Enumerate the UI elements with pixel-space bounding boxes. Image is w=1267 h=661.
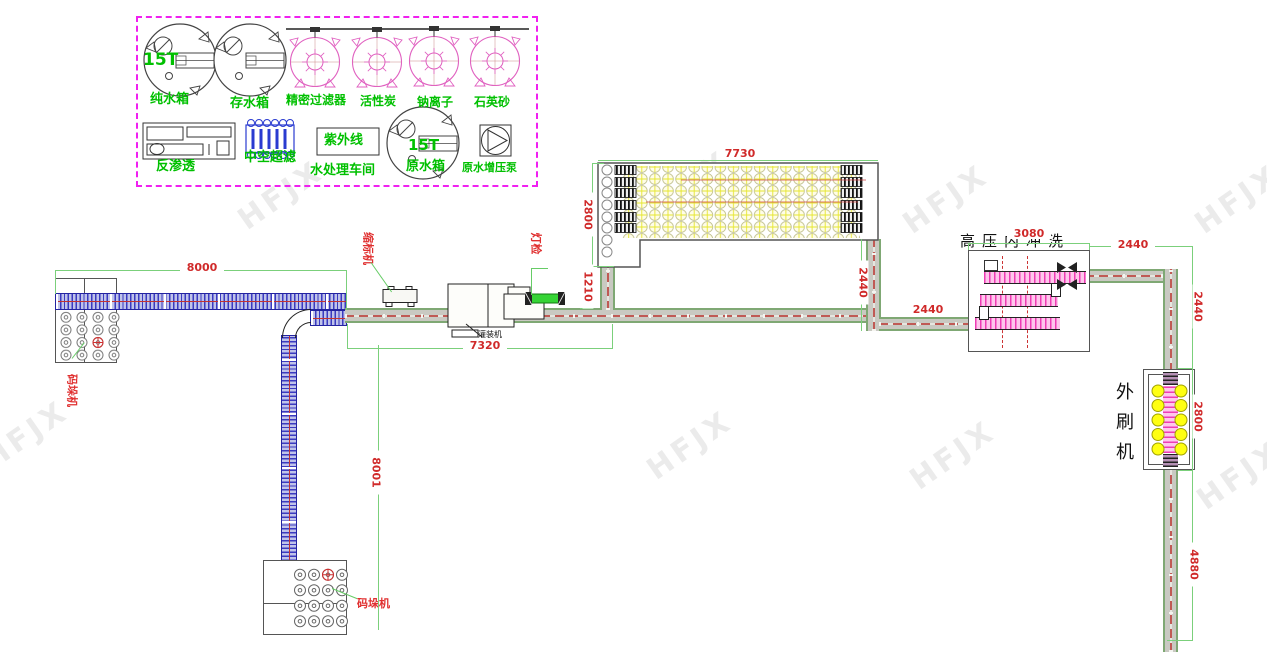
dim-2440-wash-in: 2440 bbox=[906, 304, 950, 315]
dim-ext bbox=[347, 324, 348, 348]
legend-sodium-ion: 钠离子 bbox=[417, 96, 453, 108]
dim-8001: 8001 bbox=[371, 451, 382, 495]
dim-2440-top-right: 2440 bbox=[1111, 239, 1155, 250]
filler-label: 灌装机 bbox=[478, 331, 502, 339]
dim-ext bbox=[1167, 640, 1193, 641]
shrink-labeler-machine bbox=[382, 286, 418, 307]
dim-ext bbox=[1178, 470, 1193, 471]
wash-arrow bbox=[1057, 279, 1077, 290]
wash-arrow bbox=[1057, 262, 1077, 273]
tank1-capacity: 15T bbox=[143, 52, 178, 69]
watermark: HFJX bbox=[1191, 434, 1267, 518]
lamp-inspection-label: 灯检 bbox=[531, 230, 542, 258]
palletizer-left-grid bbox=[58, 311, 122, 362]
legend-raw-water-tank: 原水箱 bbox=[406, 160, 445, 173]
dim-7320: 7320 bbox=[463, 340, 507, 351]
watermark: HFJX bbox=[0, 394, 75, 478]
dim-1210: 1210 bbox=[583, 265, 594, 309]
dim-3080: 3080 bbox=[1007, 228, 1051, 239]
booster-pump-symbol bbox=[480, 125, 511, 156]
brusher-label: 外刷机 bbox=[1114, 382, 1132, 472]
table-feed-leg-conveyor bbox=[600, 266, 615, 310]
brusher-brushes bbox=[1150, 384, 1190, 458]
wash-row-connector bbox=[979, 306, 989, 320]
accumulation-table bbox=[596, 161, 882, 271]
watermark: HFJX bbox=[1189, 158, 1267, 242]
watermark: HFJX bbox=[897, 158, 996, 242]
wash-row-2 bbox=[980, 294, 1058, 307]
dim-2800-brush: 2800 bbox=[1193, 395, 1204, 439]
dim-ext bbox=[55, 270, 56, 294]
dim-4880: 4880 bbox=[1189, 543, 1200, 587]
dim-2800-table: 2800 bbox=[583, 193, 594, 237]
legend-storage-tank: 存水箱 bbox=[230, 97, 269, 110]
legend-quartz-sand: 石英砂 bbox=[474, 96, 510, 108]
palletizer-bottom-grid bbox=[293, 567, 351, 630]
blue-conveyor-horizontal bbox=[55, 293, 347, 310]
wash-fan-symbol bbox=[984, 260, 998, 271]
palletizer-left-label: 码垛机 bbox=[67, 371, 78, 411]
legend-workshop: 水处理车间 bbox=[310, 164, 375, 177]
lamp-inspection-leader-h bbox=[531, 268, 548, 269]
dim-ext bbox=[592, 163, 604, 164]
plant-layout-drawing: HFJX HFJX HFJX HFJX HFJX HFJX HFJX HFJX bbox=[0, 0, 1267, 661]
legend-precision-filter: 精密过滤器 bbox=[286, 94, 346, 106]
dim-2440-right: 2440 bbox=[1193, 285, 1204, 329]
legend-booster-pump: 原水增压泵 bbox=[462, 162, 517, 173]
legend-reverse-osmosis: 反渗透 bbox=[156, 160, 195, 173]
reverse-osmosis-symbol bbox=[143, 123, 235, 159]
lamp-inspection-leader-v bbox=[531, 268, 532, 295]
main-line-conveyor bbox=[345, 308, 870, 323]
legend-pure-water-tank: 纯水箱 bbox=[150, 93, 189, 106]
legend-activated-carbon: 活性炭 bbox=[360, 95, 396, 107]
dim-2440-drop: 2440 bbox=[858, 261, 869, 305]
legend-ultrafiltration: 中空超滤 bbox=[244, 151, 296, 164]
dim-7730: 7730 bbox=[718, 148, 762, 159]
dim-ext bbox=[592, 266, 614, 267]
blue-conveyor-transfer bbox=[310, 310, 347, 326]
dim-8000: 8000 bbox=[180, 262, 224, 273]
dim-ext bbox=[968, 243, 969, 250]
dim-ext bbox=[346, 270, 347, 310]
wash-infeed-conveyor bbox=[879, 317, 976, 331]
legend-uv: 紫外线 bbox=[324, 134, 363, 147]
palletizer-bottom-label: 码垛机 bbox=[357, 598, 390, 609]
dim-ext bbox=[612, 324, 613, 348]
dim-ext bbox=[1178, 368, 1193, 369]
watermark: HFJX bbox=[904, 414, 1003, 498]
watermark: HFJX bbox=[641, 404, 740, 488]
dim-line-7730 bbox=[598, 160, 878, 161]
dim-line-3080 bbox=[968, 243, 1090, 244]
raw-tank-capacity: 15T bbox=[408, 138, 439, 153]
